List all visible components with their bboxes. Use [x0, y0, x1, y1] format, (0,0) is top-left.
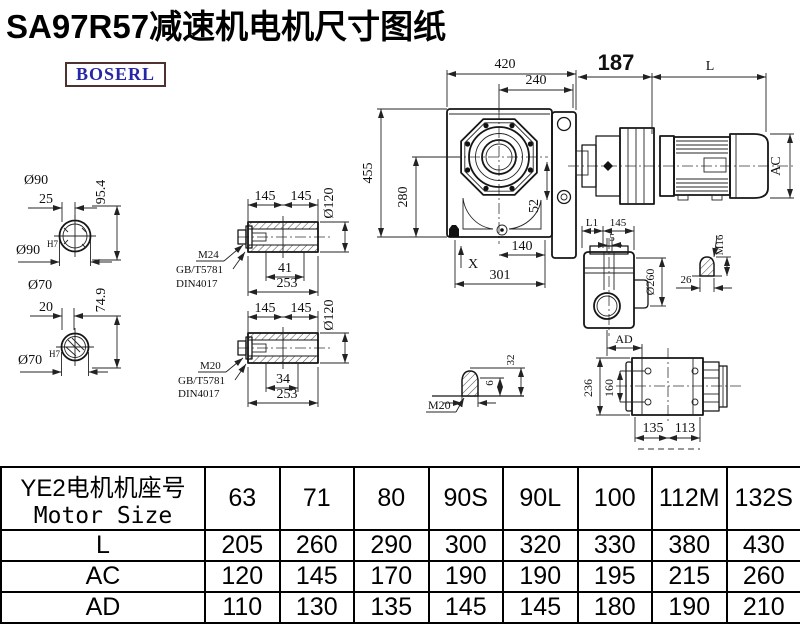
- dim-value: 120: [205, 561, 280, 592]
- dim-value: 195: [578, 561, 653, 592]
- bushing-m24-41-label: 41: [278, 261, 292, 276]
- bushing-m20-145b-label: 145: [291, 301, 312, 316]
- shaft70-bore-tol-label: H7: [49, 349, 60, 359]
- bushing-m24-view: 145 145 Ø120 41 253 M24 GB/T5781 DIN4017: [176, 187, 349, 296]
- col-header-132s: 132S: [727, 467, 800, 530]
- row-label-L: L: [1, 530, 205, 561]
- dim-value: 130: [280, 592, 355, 623]
- dim-value: 430: [727, 530, 800, 561]
- dim-455-label: 455: [361, 163, 376, 184]
- dim-value: 380: [652, 530, 727, 561]
- dim-value: 205: [205, 530, 280, 561]
- col-header-100: 100: [578, 467, 653, 530]
- motor-size-header-en: Motor Size: [2, 503, 204, 529]
- bushing-m20-view: 145 145 Ø120 34 253 M20 GB/T5781 DIN4017: [178, 299, 349, 407]
- dim-value: 300: [429, 530, 504, 561]
- bushing-m24-std1-label: GB/T5781: [176, 264, 223, 276]
- dim-value: 330: [578, 530, 653, 561]
- table-row-L: L 205 260 290 300 320 330 380 430: [1, 530, 800, 561]
- dim-value: 260: [280, 530, 355, 561]
- side-AD-label: AD: [615, 332, 633, 346]
- shaft90-keylen-label: 25: [39, 192, 53, 207]
- dim-value: 320: [503, 530, 578, 561]
- dimension-drawing: Ø90 25 95.4 Ø90 H7 Ø70 20 74.9 Ø7: [0, 0, 800, 465]
- bushing-m24-std2-label: DIN4017: [176, 278, 218, 290]
- dim-value: 180: [578, 592, 653, 623]
- bushing-m20-34-label: 34: [276, 372, 290, 387]
- motor-size-header: YE2电机机座号 Motor Size: [1, 467, 205, 530]
- plug-32-label: 32: [505, 355, 517, 366]
- dim-value: 215: [652, 561, 727, 592]
- dim-value: 145: [280, 561, 355, 592]
- shaft-90-section: Ø90 25 95.4 Ø90 H7: [16, 173, 121, 266]
- m20-plug-detail: 6 32 M20: [426, 355, 525, 413]
- shaft70-keylen-label: 20: [39, 300, 53, 315]
- foot-236-label: 236: [581, 379, 595, 397]
- dim-value: 110: [205, 592, 280, 623]
- dim-240-label: 240: [526, 73, 547, 88]
- dim-420-label: 420: [495, 57, 516, 72]
- dim-187-label: 187: [598, 50, 635, 75]
- side-L1-label: L1: [586, 217, 598, 229]
- row-label-AD: AD: [1, 592, 205, 623]
- dim-301-label: 301: [490, 268, 511, 283]
- dim-L-label: L: [706, 59, 715, 74]
- gearbox-front-view: 420 240 455 280 52 X 140 301: [361, 57, 576, 288]
- output-side-view: L1 145 5 Ø260 AD: [582, 217, 666, 358]
- dim-value: 210: [727, 592, 800, 623]
- dim-value: 145: [429, 592, 504, 623]
- dim-140-label: 140: [512, 239, 533, 254]
- m16-plug-detail: M16 26: [676, 234, 732, 292]
- bushing-m20-dia-label: Ø120: [322, 299, 337, 330]
- col-header-80: 80: [354, 467, 429, 530]
- bushing-m24-thread-label: M24: [198, 249, 219, 261]
- foot-160-label: 160: [602, 379, 616, 397]
- shaft90-dia-label: Ø90: [24, 173, 48, 188]
- bushing-m20-std1-label: GB/T5781: [178, 375, 225, 387]
- shaft90-height-label: 95.4: [94, 180, 109, 205]
- bushing-m20-std2-label: DIN4017: [178, 388, 220, 400]
- mounting-foot-view: 236 160 135 113: [581, 348, 742, 449]
- col-header-71: 71: [280, 467, 355, 530]
- m16-26-label: 26: [681, 274, 693, 286]
- dim-value: 135: [354, 592, 429, 623]
- side-dia260-label: Ø260: [643, 269, 657, 296]
- plug-6-label: 6: [484, 380, 496, 386]
- shaft90-bore-label: Ø90: [16, 243, 40, 258]
- table-row-AD: AD 110 130 135 145 145 180 190 210: [1, 592, 800, 623]
- bushing-m24-145a-label: 145: [255, 189, 276, 204]
- dim-value: 190: [503, 561, 578, 592]
- table-header-row: YE2电机机座号 Motor Size 63 71 80 90S 90L 100…: [1, 467, 800, 530]
- foot-113-label: 113: [675, 421, 695, 436]
- dim-value: 145: [503, 592, 578, 623]
- dim-280-label: 280: [396, 187, 411, 208]
- bushing-m20-253-label: 253: [277, 387, 298, 402]
- dim-value: 260: [727, 561, 800, 592]
- motor-side-view: 187 L AC: [568, 50, 796, 204]
- bushing-m24-145b-label: 145: [291, 189, 312, 204]
- plug-m20-label: M20: [428, 398, 451, 412]
- side-145-label: 145: [610, 217, 627, 229]
- shaft70-height-label: 74.9: [94, 288, 109, 313]
- motor-size-header-cn: YE2电机机座号: [2, 468, 204, 503]
- dim-52-label: 52: [527, 199, 542, 213]
- bushing-m20-145a-label: 145: [255, 301, 276, 316]
- bushing-m20-thread-label: M20: [200, 360, 221, 372]
- shaft70-bore-label: Ø70: [18, 353, 42, 368]
- dim-value: 170: [354, 561, 429, 592]
- x-mark-label: X: [468, 257, 478, 272]
- col-header-90l: 90L: [503, 467, 578, 530]
- dim-value: 290: [354, 530, 429, 561]
- motor-dimension-table: YE2电机机座号 Motor Size 63 71 80 90S 90L 100…: [0, 466, 800, 624]
- shaft70-dia-label: Ø70: [28, 278, 52, 293]
- table-row-AC: AC 120 145 170 190 190 195 215 260: [1, 561, 800, 592]
- dim-value: 190: [429, 561, 504, 592]
- foot-135-label: 135: [643, 421, 664, 436]
- col-header-63: 63: [205, 467, 280, 530]
- col-header-112m: 112M: [652, 467, 727, 530]
- shaft90-bore-tol-label: H7: [47, 239, 58, 249]
- col-header-90s: 90S: [429, 467, 504, 530]
- bushing-m24-253-label: 253: [277, 276, 298, 291]
- bushing-m24-dia-label: Ø120: [322, 187, 337, 218]
- shaft-70-section: Ø70 20 74.9 Ø70 H7: [18, 278, 121, 376]
- dim-AC-label: AC: [769, 156, 784, 175]
- dim-value: 190: [652, 592, 727, 623]
- row-label-AC: AC: [1, 561, 205, 592]
